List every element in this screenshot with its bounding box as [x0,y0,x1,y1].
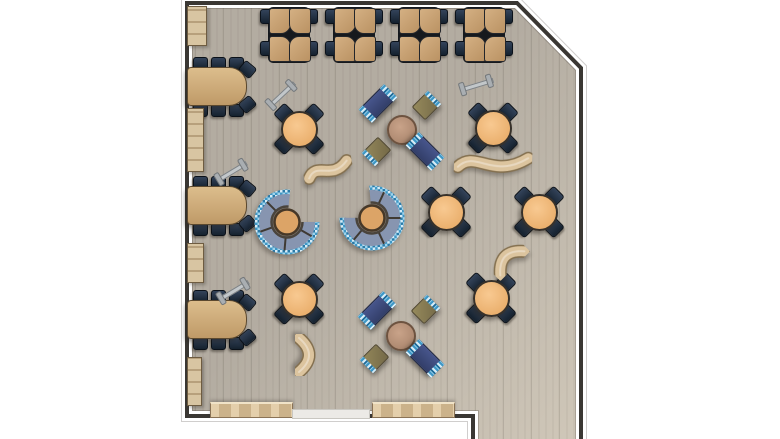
entry-mat [292,409,370,419]
round-table-group [268,98,328,158]
desk [269,36,291,62]
wall-bench [210,402,293,418]
desk [419,36,441,62]
wall-cabinet [187,108,204,172]
round-table [281,281,318,318]
round-table-group [415,181,475,241]
desk [289,36,311,62]
wall-cabinet [187,357,202,406]
desk [464,36,486,62]
wave-bench [453,147,532,182]
booth-table [360,206,385,231]
desk [399,8,421,34]
long-table-group [187,57,257,115]
desk-cluster [260,6,316,64]
wall-cabinet [187,6,207,46]
desk [464,8,486,34]
desk [484,36,506,62]
round-table [428,194,465,231]
round-table [473,280,510,317]
desk [334,8,356,34]
desk [289,8,311,34]
round-table-group [268,268,328,328]
long-table [187,300,247,339]
desk [419,8,441,34]
round-table [475,110,512,147]
desk [399,36,421,62]
wall-cabinet [187,243,204,283]
desk [269,8,291,34]
floor-plan [0,0,780,439]
wall-bench [372,402,455,418]
desk [354,8,376,34]
desk [354,36,376,62]
booth-table [275,210,300,235]
desk-cluster [455,6,511,64]
long-table [187,67,247,106]
round-table [521,194,558,231]
round-table [281,111,318,148]
desk [334,36,356,62]
desk [484,8,506,34]
round-table-group [460,267,520,327]
desk-cluster [390,6,446,64]
round-table-group [508,181,568,241]
desk-cluster [325,6,381,64]
wave-bench [295,334,321,376]
